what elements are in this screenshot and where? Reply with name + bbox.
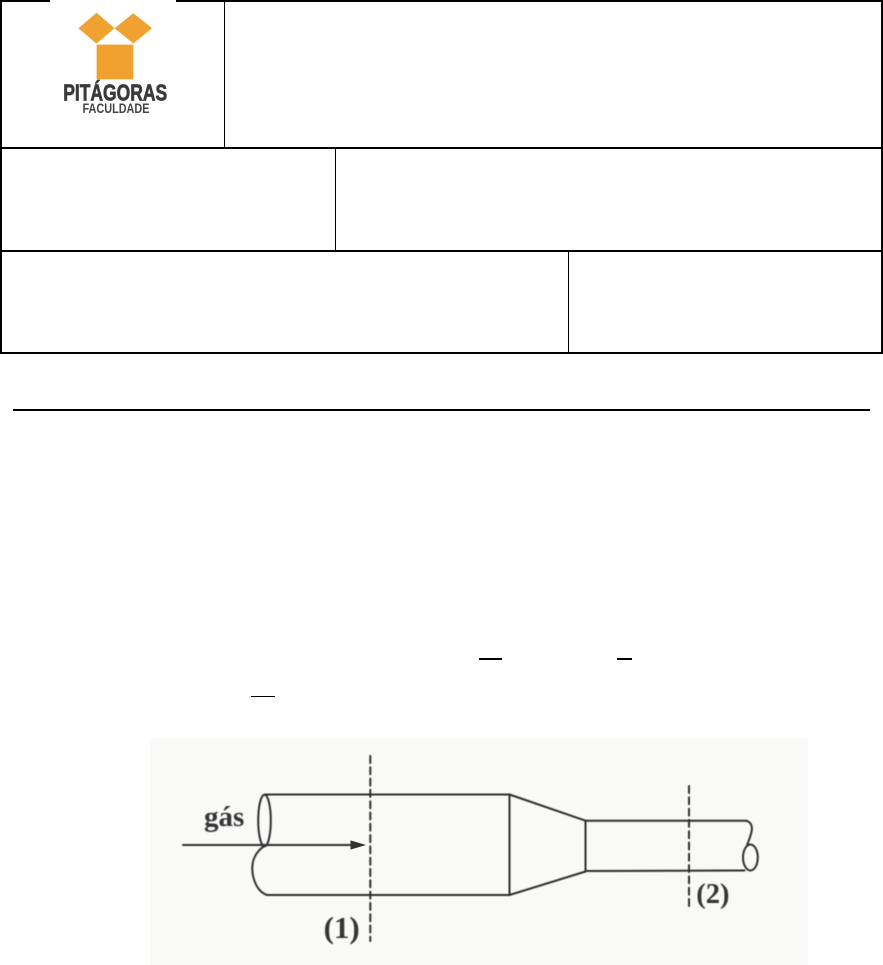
svg-text:(2): (2): [696, 879, 729, 910]
svg-text:FACULDADE: FACULDADE: [83, 101, 150, 116]
svg-text:(1): (1): [324, 910, 360, 945]
svg-text:gás: gás: [204, 801, 244, 833]
